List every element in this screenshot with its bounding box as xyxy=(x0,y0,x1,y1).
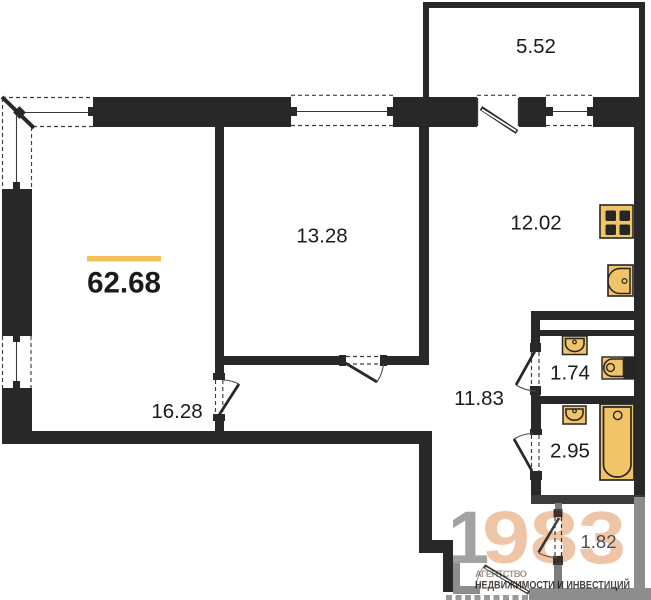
svg-text:5.52: 5.52 xyxy=(516,35,556,58)
svg-text:16.28: 16.28 xyxy=(151,400,202,423)
svg-text:13.28: 13.28 xyxy=(296,225,347,248)
svg-text:12.02: 12.02 xyxy=(510,212,561,235)
svg-text:2.95: 2.95 xyxy=(550,440,590,463)
svg-text:1.74: 1.74 xyxy=(550,362,590,385)
svg-text:11.83: 11.83 xyxy=(454,387,504,410)
svg-text:НЕДВИЖИМОСТИ И ИНВЕСТИЦИЙ: НЕДВИЖИМОСТИ И ИНВЕСТИЦИЙ xyxy=(475,579,630,592)
svg-text:1.82: 1.82 xyxy=(580,531,616,552)
svg-text:АГЕНТСТВО: АГЕНТСТВО xyxy=(475,569,527,580)
svg-text:62.68: 62.68 xyxy=(87,267,161,300)
